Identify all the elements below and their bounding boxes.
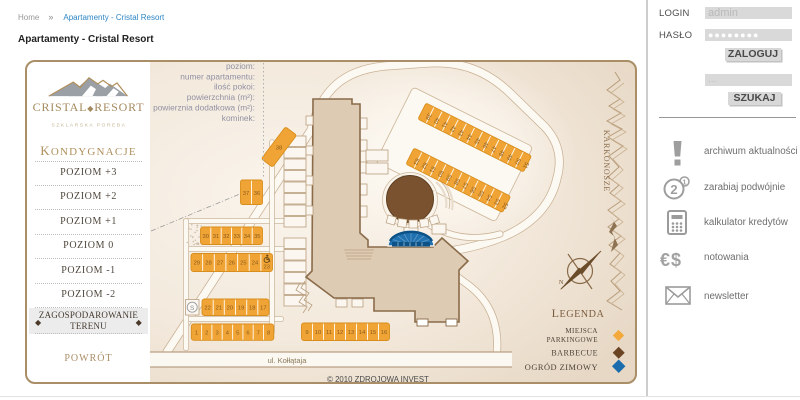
svg-text:14: 14 (359, 330, 366, 336)
svg-text:kominek:: kominek: (222, 113, 255, 123)
svg-text:© 2010 ZDROJOWA INVEST: © 2010 ZDROJOWA INVEST (327, 375, 429, 382)
svg-text:powierznia dodatkowa (m²):: powierznia dodatkowa (m²): (153, 103, 255, 113)
svg-text:BARBECUE: BARBECUE (551, 349, 598, 358)
svg-text:LEGENDA: LEGENDA (552, 306, 605, 320)
svg-text:SZKLARSKA POREBA: SZKLARSKA POREBA (51, 123, 126, 129)
svg-text:29: 29 (194, 261, 200, 267)
svg-text:37: 37 (243, 191, 249, 197)
svg-text:12: 12 (337, 330, 343, 336)
svg-text:S: S (190, 305, 195, 312)
svg-text:9: 9 (305, 330, 308, 336)
svg-text:36: 36 (254, 191, 260, 197)
svg-text:6: 6 (246, 330, 249, 336)
svg-text:27: 27 (217, 261, 223, 267)
svg-text:11: 11 (326, 330, 332, 336)
svg-text:KARKONOSZE: KARKONOSZE (602, 130, 611, 192)
svg-text:1: 1 (195, 330, 198, 336)
svg-text:34: 34 (244, 234, 251, 240)
svg-text:20: 20 (227, 305, 233, 311)
svg-text:30: 30 (202, 234, 208, 240)
svg-text:38: 38 (276, 146, 282, 152)
svg-text:5: 5 (236, 330, 239, 336)
svg-text:18: 18 (249, 305, 255, 311)
svg-text:PARKINGOWE: PARKINGOWE (547, 336, 598, 344)
svg-text:22: 22 (204, 305, 210, 311)
svg-text:numer apartamentu:: numer apartamentu: (180, 72, 255, 82)
svg-text:10: 10 (315, 330, 321, 336)
svg-text:33: 33 (233, 234, 239, 240)
svg-text:19: 19 (238, 305, 244, 311)
svg-text:N: N (559, 280, 564, 286)
svg-text:2: 2 (670, 182, 677, 197)
svg-text:13: 13 (348, 330, 354, 336)
svg-text:OGRÓD ZIMOWY: OGRÓD ZIMOWY (525, 362, 598, 372)
svg-text:28: 28 (205, 261, 211, 267)
svg-text:powierzchnia (m²):: powierzchnia (m²): (187, 92, 255, 102)
svg-text:25: 25 (240, 261, 246, 267)
svg-text:21: 21 (216, 305, 222, 311)
svg-text:poziom:: poziom: (226, 62, 255, 71)
svg-text:3: 3 (215, 330, 218, 336)
svg-text:8: 8 (267, 330, 270, 336)
svg-text:7: 7 (257, 330, 260, 336)
svg-text:35: 35 (254, 234, 260, 240)
svg-text:15: 15 (370, 330, 376, 336)
svg-text:MIEJSCA: MIEJSCA (565, 327, 598, 335)
svg-text:2: 2 (205, 330, 208, 336)
svg-text:24: 24 (252, 261, 259, 267)
svg-text:26: 26 (229, 261, 235, 267)
svg-text:23: 23 (263, 265, 269, 271)
svg-text:32: 32 (223, 234, 229, 240)
svg-text:17: 17 (260, 305, 266, 311)
svg-text:ilość pokoi:: ilość pokoi: (214, 82, 255, 92)
svg-text:16: 16 (381, 330, 387, 336)
svg-text:ul. Kołłątaja: ul. Kołłątaja (268, 356, 308, 365)
svg-text:31: 31 (213, 234, 219, 240)
